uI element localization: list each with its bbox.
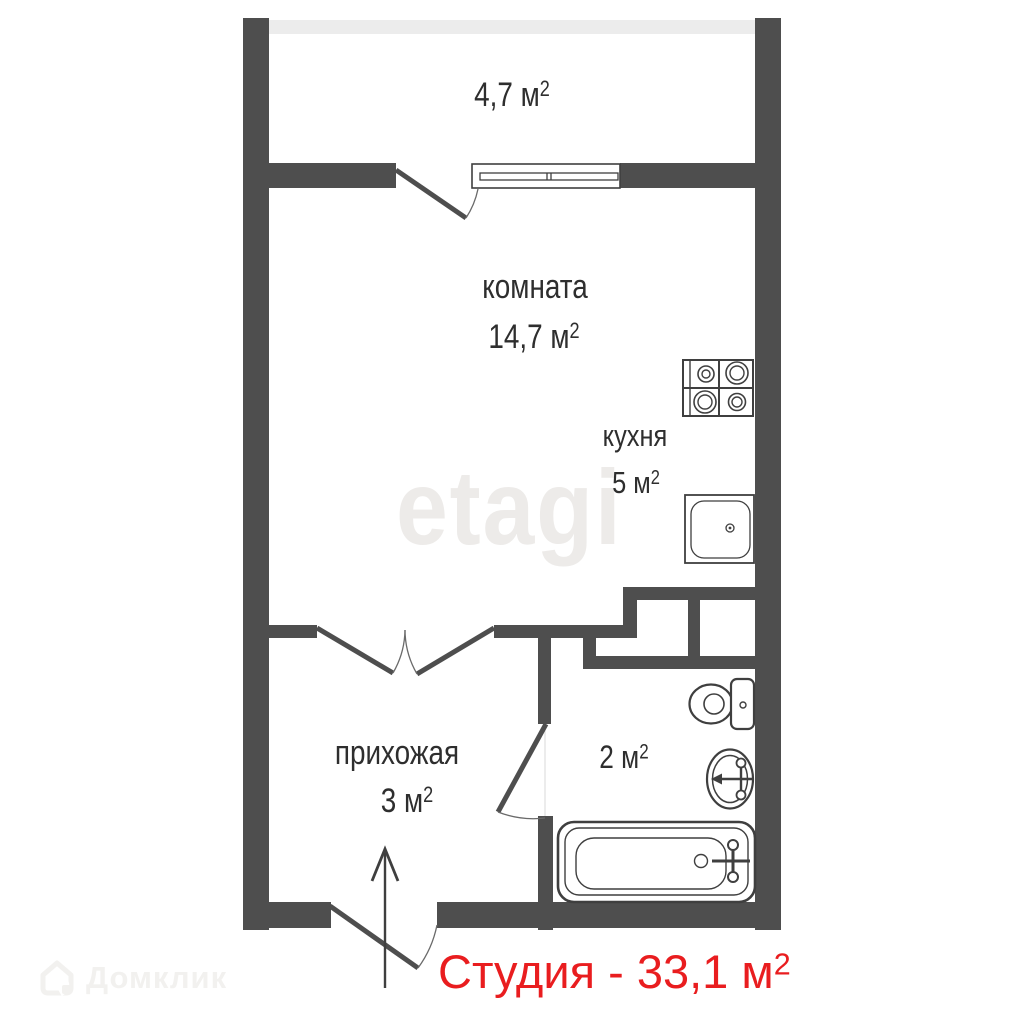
brand-watermark: Домклик bbox=[36, 958, 227, 998]
bathtub-icon bbox=[558, 822, 755, 902]
house-icon bbox=[36, 958, 78, 998]
floor-plan: etagi bbox=[0, 0, 1024, 1024]
bathroom-area-label: 2 м2 bbox=[599, 741, 648, 773]
balcony-area-label: 4,7 м2 bbox=[474, 78, 550, 112]
brand-name: Домклик bbox=[86, 960, 227, 996]
hallway-area-label: 3 м2 bbox=[381, 784, 434, 818]
kitchen-name-label: кухня bbox=[603, 420, 668, 451]
plan-title: Студия - 33,1 м2 bbox=[438, 948, 791, 995]
stove-icon bbox=[683, 360, 753, 416]
room-area-label: 14,7 м2 bbox=[488, 320, 579, 354]
room-name-label: комната bbox=[482, 270, 587, 304]
entrance-door-icon bbox=[330, 906, 437, 968]
kitchen-area-label: 5 м2 bbox=[612, 467, 660, 498]
washbasin-icon bbox=[707, 750, 753, 809]
double-door-icon bbox=[317, 628, 494, 674]
toilet-icon bbox=[690, 679, 755, 729]
window-icon bbox=[472, 164, 620, 188]
hallway-name-label: прихожая bbox=[335, 736, 459, 770]
balcony-door-icon bbox=[396, 170, 478, 218]
bathroom-door-icon bbox=[498, 724, 546, 819]
kitchen-sink-icon bbox=[685, 495, 754, 563]
entrance-arrow-icon bbox=[372, 849, 398, 988]
plan-symbols bbox=[0, 0, 1024, 1024]
